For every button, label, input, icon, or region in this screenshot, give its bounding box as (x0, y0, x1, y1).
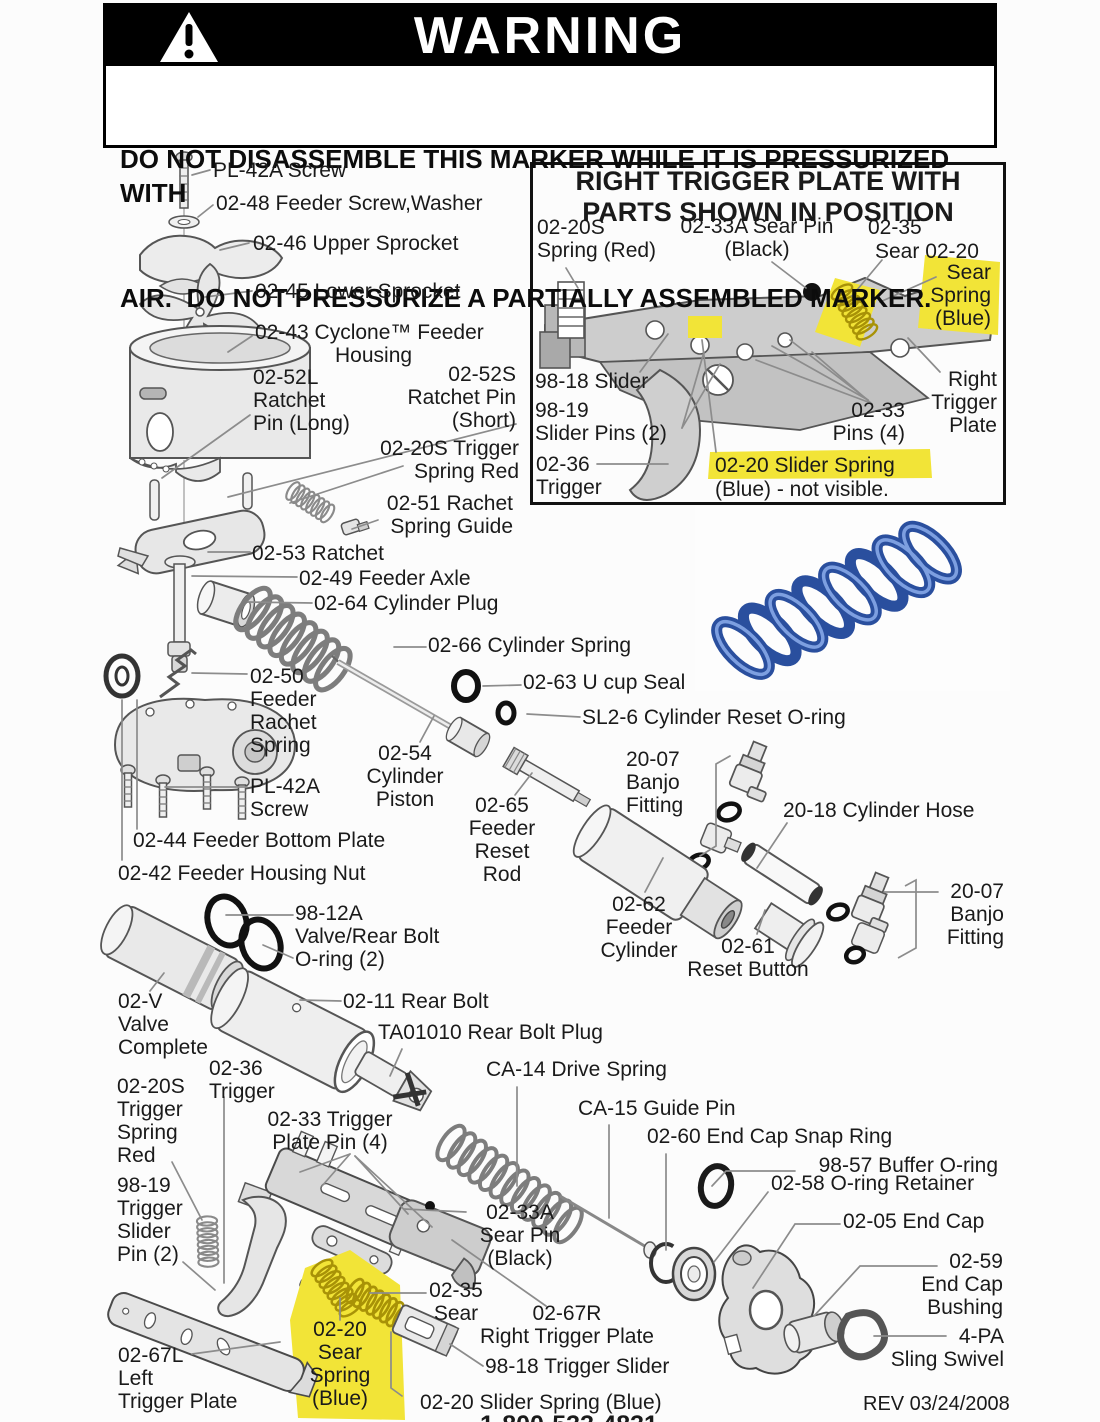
part-label: 02-20S Trigger Spring Red (117, 1075, 185, 1167)
part-label: 02-52L Ratchet Pin (Long) (253, 366, 350, 435)
part-label: 02-33A Sear Pin (Black) (681, 215, 834, 261)
part-label: 1-800-533-4831 (480, 1412, 658, 1422)
part-label: PL-42A Screw (213, 159, 346, 182)
part-label: 02-54 Cylinder Piston (366, 742, 443, 811)
part-label: 02-35 Sear (429, 1279, 483, 1325)
part-label: 02-33 Pins (4) (833, 399, 905, 445)
part-label: 02-60 End Cap Snap Ring (647, 1125, 892, 1148)
part-label: PL-42A Screw (250, 775, 320, 821)
part-label: (Blue) - not visible. (715, 478, 889, 501)
part-label: 02-42 Feeder Housing Nut (118, 862, 365, 885)
parts-diagram-page: WARNING DO NOT DISASSEMBLE THIS MARKER W… (0, 0, 1100, 1422)
part-label: 02-63 U cup Seal (523, 671, 685, 694)
part-label: 02-44 Feeder Bottom Plate (133, 829, 385, 852)
part-label: 02-20S Spring (Red) (537, 216, 656, 262)
part-label: 02-46 Upper Sprocket (253, 232, 458, 255)
part-label: 02-V Valve Complete (118, 990, 208, 1059)
part-label: 20-07 Banjo Fitting (626, 748, 683, 817)
part-label: 02-45 Lower Sprocket (255, 280, 460, 303)
part-label: CA-14 Drive Spring (486, 1058, 667, 1081)
part-label: REV 03/24/2008 (863, 1393, 1010, 1415)
part-label: 02-62 Feeder Cylinder (600, 893, 677, 962)
part-label: 02-43 Cyclone™ Feeder (255, 321, 484, 344)
part-label: 02-66 Cylinder Spring (428, 634, 631, 657)
part-label: 02-05 End Cap (843, 1210, 984, 1233)
part-label: 02-11 Rear Bolt (343, 990, 489, 1013)
part-label: 02-36 Trigger (536, 453, 602, 499)
part-label: 02-53 Ratchet (252, 542, 384, 565)
part-label: 98-18 Slider (535, 370, 648, 393)
part-label: Right Trigger Plate (931, 368, 997, 437)
part-label: 02-33 Trigger Plate Pin (4) (268, 1108, 393, 1154)
part-label: TA01010 Rear Bolt Plug (378, 1021, 603, 1044)
part-label: 4-PA Sling Swivel (891, 1325, 1004, 1371)
part-label: 20-18 Cylinder Hose (783, 799, 974, 822)
part-label: 02-52S Ratchet Pin (Short) (407, 363, 516, 432)
part-label: 02-33A Sear Pin (Black) (480, 1201, 561, 1270)
part-label: 02-50 Feeder Rachet Spring (250, 665, 317, 757)
part-label: Housing (335, 344, 412, 367)
part-label: 02-51 Rachet Spring Guide (387, 492, 513, 538)
part-label: 02-20S Trigger Spring Red (380, 437, 519, 483)
part-label: 98-12A Valve/Rear Bolt O-ring (2) (295, 902, 439, 971)
part-label: 98-19 Trigger Slider Pin (2) (117, 1174, 183, 1266)
part-label: SL2-6 Cylinder Reset O-ring (582, 706, 846, 729)
part-label: 02-49 Feeder Axle (299, 567, 471, 590)
part-label: 02-20 Sear Spring (Blue) (310, 1318, 371, 1410)
part-label: 02-48 Feeder Screw,Washer (216, 192, 483, 215)
part-label: 02-64 Cylinder Plug (314, 592, 498, 615)
part-label: 02-20 Slider Spring (715, 454, 895, 477)
part-label: 02-67R Right Trigger Plate (480, 1302, 654, 1348)
part-label: Sear 02-20 (875, 240, 979, 263)
part-label: 02-67L Left Trigger Plate (118, 1344, 237, 1413)
part-label: 02-35 (868, 216, 922, 239)
part-label: 02-61 Reset Button (687, 935, 808, 981)
part-label: 02-36 Trigger (209, 1057, 275, 1103)
part-label: CA-15 Guide Pin (578, 1097, 736, 1120)
part-label: 02-58 O-ring Retainer (771, 1172, 974, 1195)
part-label: 02-65 Feeder Reset Rod (469, 794, 536, 886)
part-label: Sear Spring (Blue) (930, 261, 991, 330)
labels-layer: PL-42A Screw02-48 Feeder Screw,Washer02-… (0, 0, 1100, 1422)
blue-spring-photo (695, 506, 1010, 691)
part-label: 20-07 Banjo Fitting (947, 880, 1004, 949)
part-label: 98-19 Slider Pins (2) (535, 399, 667, 445)
part-label: 98-18 Trigger Slider (485, 1355, 669, 1378)
part-label: 02-59 End Cap Bushing (921, 1250, 1003, 1319)
